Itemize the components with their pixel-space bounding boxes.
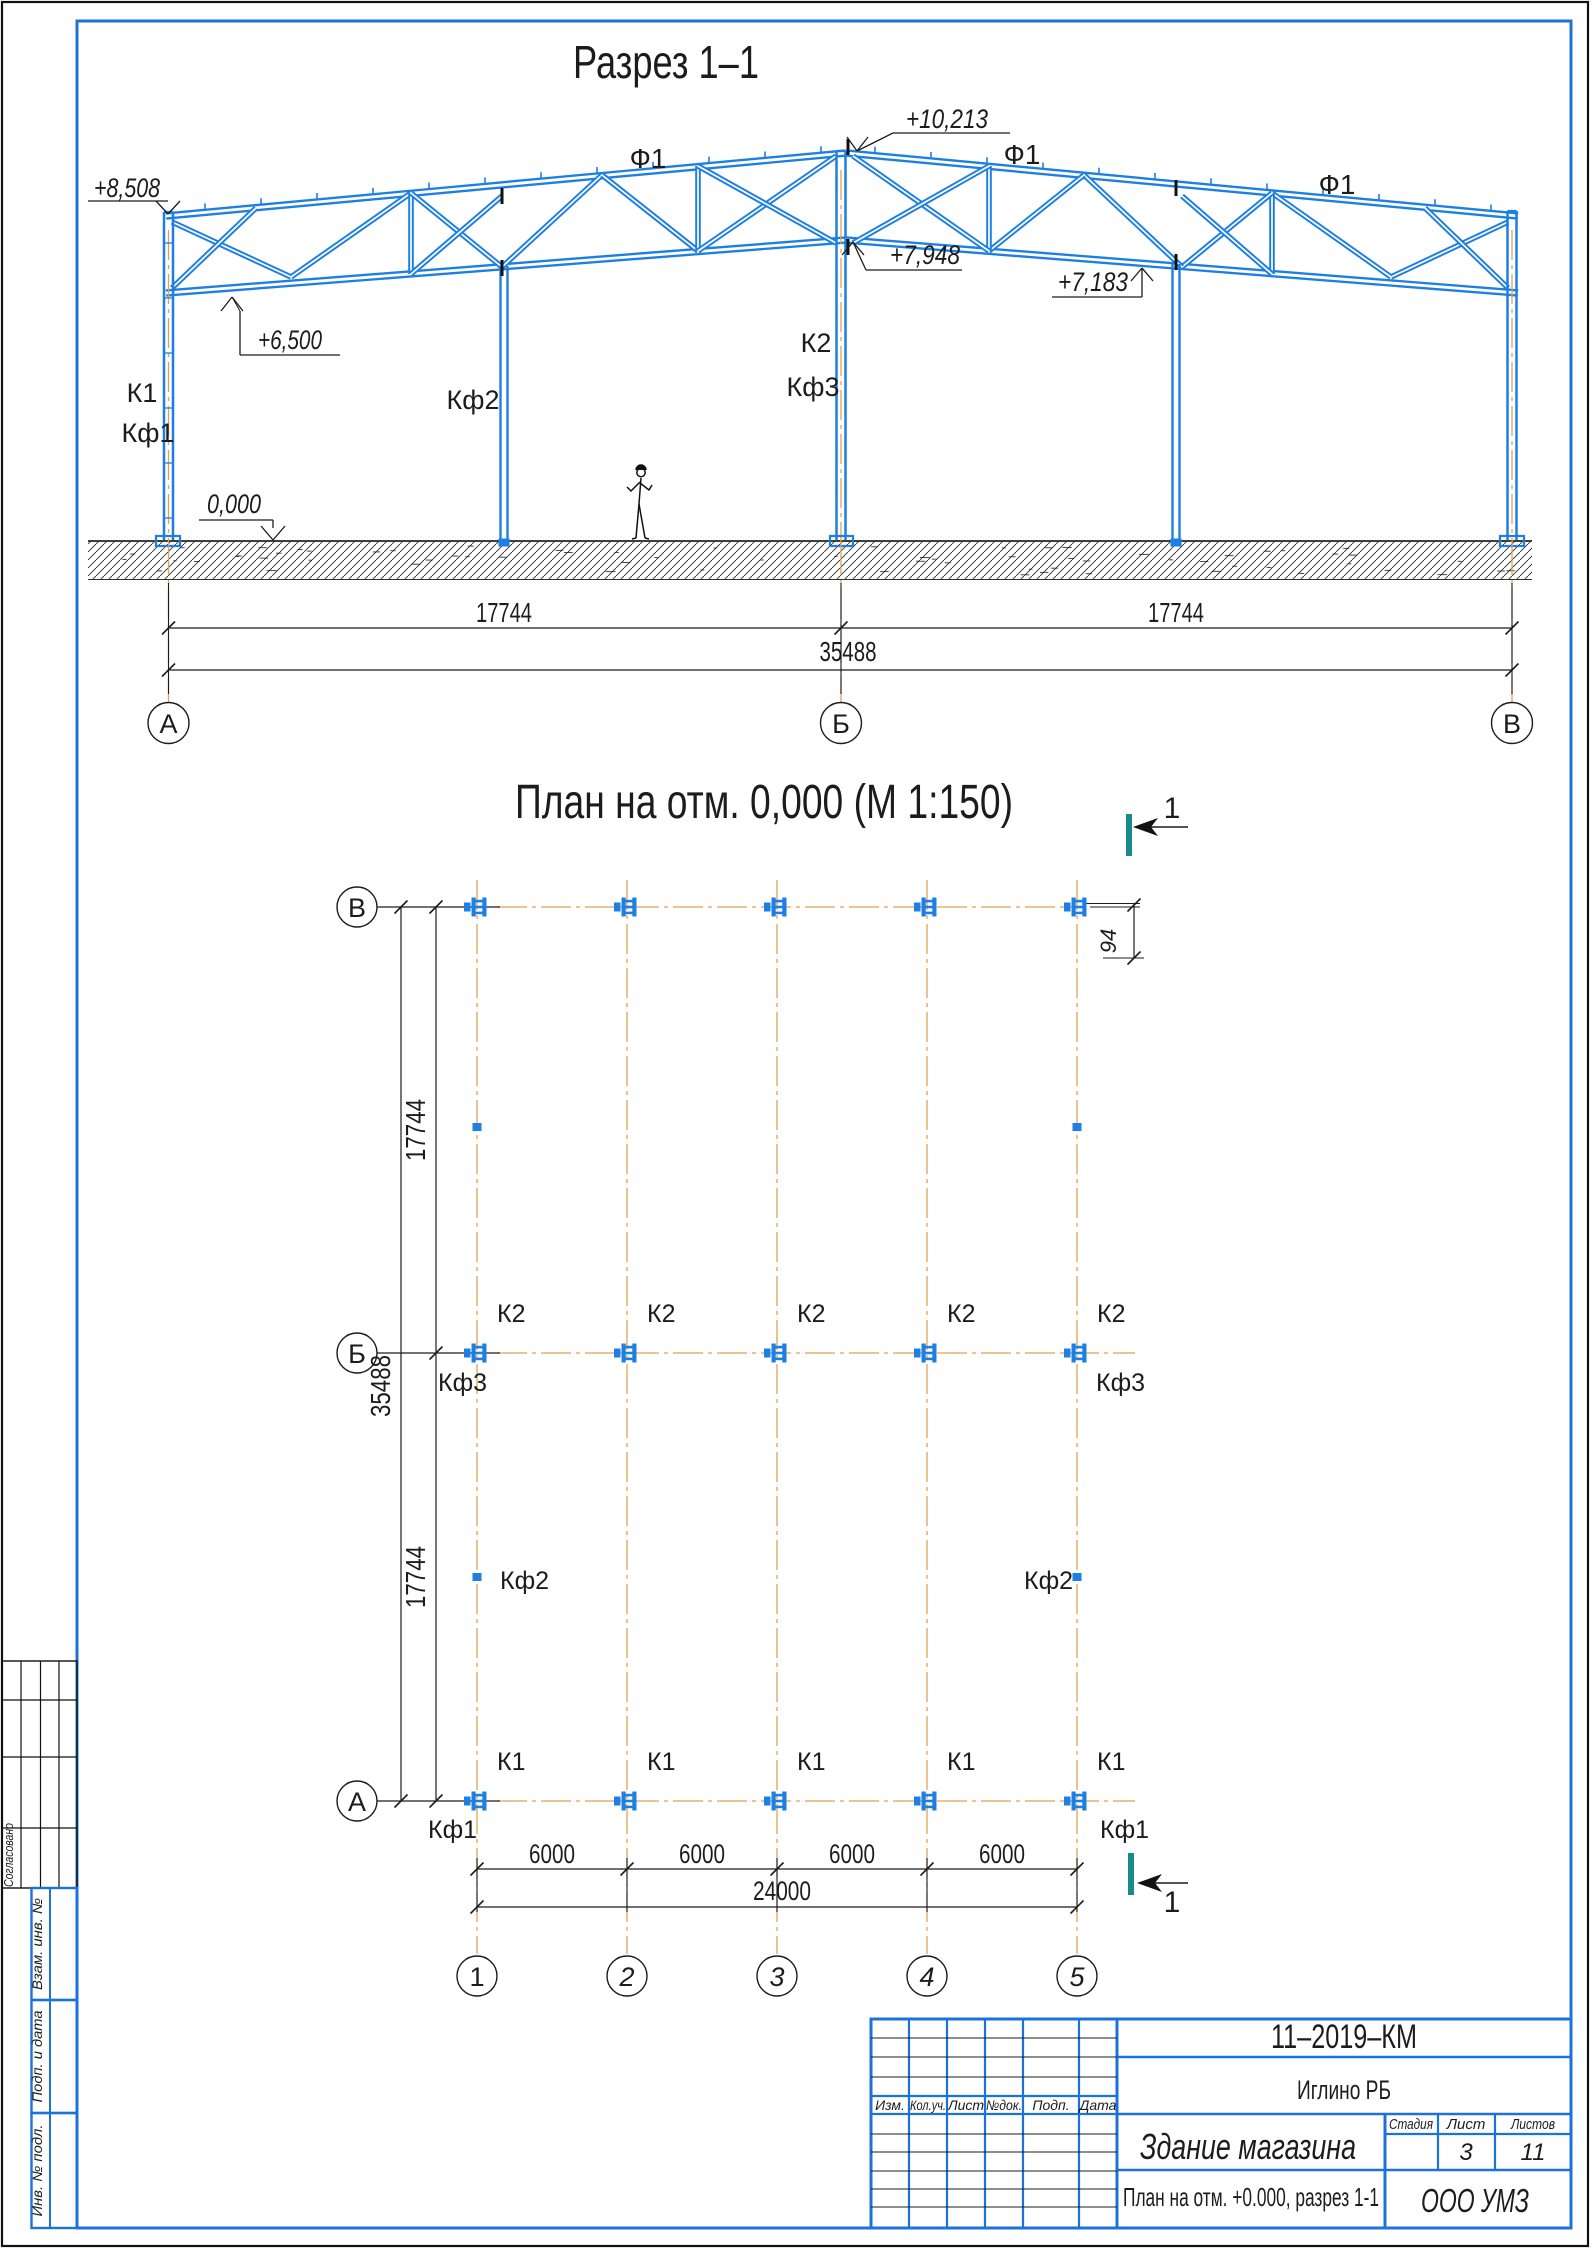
svg-text:ООО УМЗ: ООО УМЗ bbox=[1421, 2182, 1529, 2219]
svg-text:К2: К2 bbox=[647, 1300, 675, 1328]
svg-text:3: 3 bbox=[769, 1962, 784, 1992]
svg-text:17744: 17744 bbox=[400, 1099, 431, 1161]
svg-text:Лист: Лист bbox=[947, 2097, 984, 2113]
svg-text:К2: К2 bbox=[801, 328, 832, 358]
svg-text:К1: К1 bbox=[647, 1748, 675, 1776]
svg-text:К1: К1 bbox=[127, 378, 158, 408]
svg-text:94: 94 bbox=[1096, 929, 1121, 953]
svg-text:К2: К2 bbox=[947, 1300, 975, 1328]
svg-text:+7,948: +7,948 bbox=[890, 240, 960, 270]
svg-text:11–2019–КМ: 11–2019–КМ bbox=[1271, 2018, 1417, 2056]
svg-text:6000: 6000 bbox=[979, 1839, 1025, 1869]
svg-text:35488: 35488 bbox=[820, 636, 877, 667]
svg-text:Кф2: Кф2 bbox=[447, 385, 500, 415]
svg-text:+7,183: +7,183 bbox=[1058, 267, 1128, 297]
svg-text:К2: К2 bbox=[497, 1300, 525, 1328]
svg-text:Ф1: Ф1 bbox=[1319, 169, 1356, 200]
svg-text:1: 1 bbox=[1164, 1886, 1181, 1919]
svg-text:План на отм. 0,000 (М 1:150): План на отм. 0,000 (М 1:150) bbox=[515, 776, 1013, 829]
svg-text:+6,500: +6,500 bbox=[258, 325, 322, 355]
svg-text:Стадия: Стадия bbox=[1389, 2116, 1433, 2133]
svg-text:К1: К1 bbox=[797, 1748, 825, 1776]
svg-text:Кф1: Кф1 bbox=[122, 418, 175, 448]
svg-text:К2: К2 bbox=[1097, 1300, 1125, 1328]
svg-text:Б: Б bbox=[348, 1339, 366, 1369]
svg-text:1: 1 bbox=[1164, 792, 1181, 825]
svg-text:Дата: Дата bbox=[1078, 2097, 1117, 2113]
svg-text:Взам. инв. №: Взам. инв. № bbox=[30, 1898, 45, 1990]
svg-text:Кф2: Кф2 bbox=[500, 1567, 549, 1595]
svg-text:Согласовано: Согласовано bbox=[1, 1823, 16, 1887]
svg-text:2: 2 bbox=[618, 1962, 634, 1992]
svg-text:Подп. и дата: Подп. и дата bbox=[30, 2010, 45, 2103]
svg-text:Кф3: Кф3 bbox=[1096, 1369, 1145, 1397]
svg-text:Ф1: Ф1 bbox=[1004, 139, 1041, 170]
svg-text:17744: 17744 bbox=[1148, 597, 1204, 628]
svg-text:1: 1 bbox=[469, 1962, 484, 1992]
svg-text:Ф1: Ф1 bbox=[630, 143, 667, 174]
svg-text:0,000: 0,000 bbox=[207, 489, 261, 519]
svg-text:В: В bbox=[348, 893, 366, 923]
svg-text:5: 5 bbox=[1069, 1962, 1085, 1992]
svg-text:В: В bbox=[1503, 709, 1521, 739]
svg-text:К1: К1 bbox=[947, 1748, 975, 1776]
svg-text:Иглино РБ: Иглино РБ bbox=[1297, 2075, 1391, 2105]
svg-text:А: А bbox=[348, 1787, 366, 1817]
svg-text:К2: К2 bbox=[797, 1300, 825, 1328]
svg-text:Разрез 1–1: Разрез 1–1 bbox=[573, 36, 759, 88]
svg-text:Кф3: Кф3 bbox=[438, 1369, 487, 1397]
svg-text:Изм.: Изм. bbox=[875, 2097, 905, 2113]
svg-text:Кф1: Кф1 bbox=[1100, 1816, 1149, 1844]
svg-text:17744: 17744 bbox=[476, 597, 532, 628]
svg-text:3: 3 bbox=[1459, 2139, 1473, 2166]
svg-text:Инв. № подл.: Инв. № подл. bbox=[30, 2125, 45, 2217]
svg-text:Кф3: Кф3 bbox=[787, 372, 840, 402]
svg-text:6000: 6000 bbox=[529, 1839, 575, 1869]
svg-text:Подп.: Подп. bbox=[1032, 2097, 1069, 2113]
svg-text:№док.: №док. bbox=[986, 2097, 1022, 2113]
svg-text:35488: 35488 bbox=[365, 1355, 396, 1417]
svg-text:К1: К1 bbox=[497, 1748, 525, 1776]
svg-text:Здание магазина: Здание магазина bbox=[1140, 2126, 1356, 2167]
svg-text:6000: 6000 bbox=[829, 1839, 875, 1869]
svg-text:24000: 24000 bbox=[753, 1876, 811, 1906]
svg-text:+10,213: +10,213 bbox=[906, 104, 988, 134]
svg-text:План на отм. +0.000, разрез 1-: План на отм. +0.000, разрез 1-1 bbox=[1123, 2182, 1379, 2212]
svg-text:Кф2: Кф2 bbox=[1024, 1567, 1073, 1595]
svg-text:17744: 17744 bbox=[400, 1546, 431, 1608]
svg-text:4: 4 bbox=[919, 1962, 934, 1992]
svg-text:Б: Б bbox=[832, 709, 850, 739]
svg-text:К1: К1 bbox=[1097, 1748, 1125, 1776]
svg-text:11: 11 bbox=[1521, 2139, 1546, 2166]
svg-text:Лист: Лист bbox=[1446, 2116, 1486, 2133]
svg-text:+8,508: +8,508 bbox=[94, 173, 160, 203]
svg-text:Кф1: Кф1 bbox=[428, 1816, 477, 1844]
svg-text:Кол.уч.: Кол.уч. bbox=[910, 2097, 946, 2113]
svg-text:Листов: Листов bbox=[1510, 2116, 1555, 2133]
svg-text:6000: 6000 bbox=[679, 1839, 725, 1869]
svg-text:А: А bbox=[159, 709, 177, 739]
